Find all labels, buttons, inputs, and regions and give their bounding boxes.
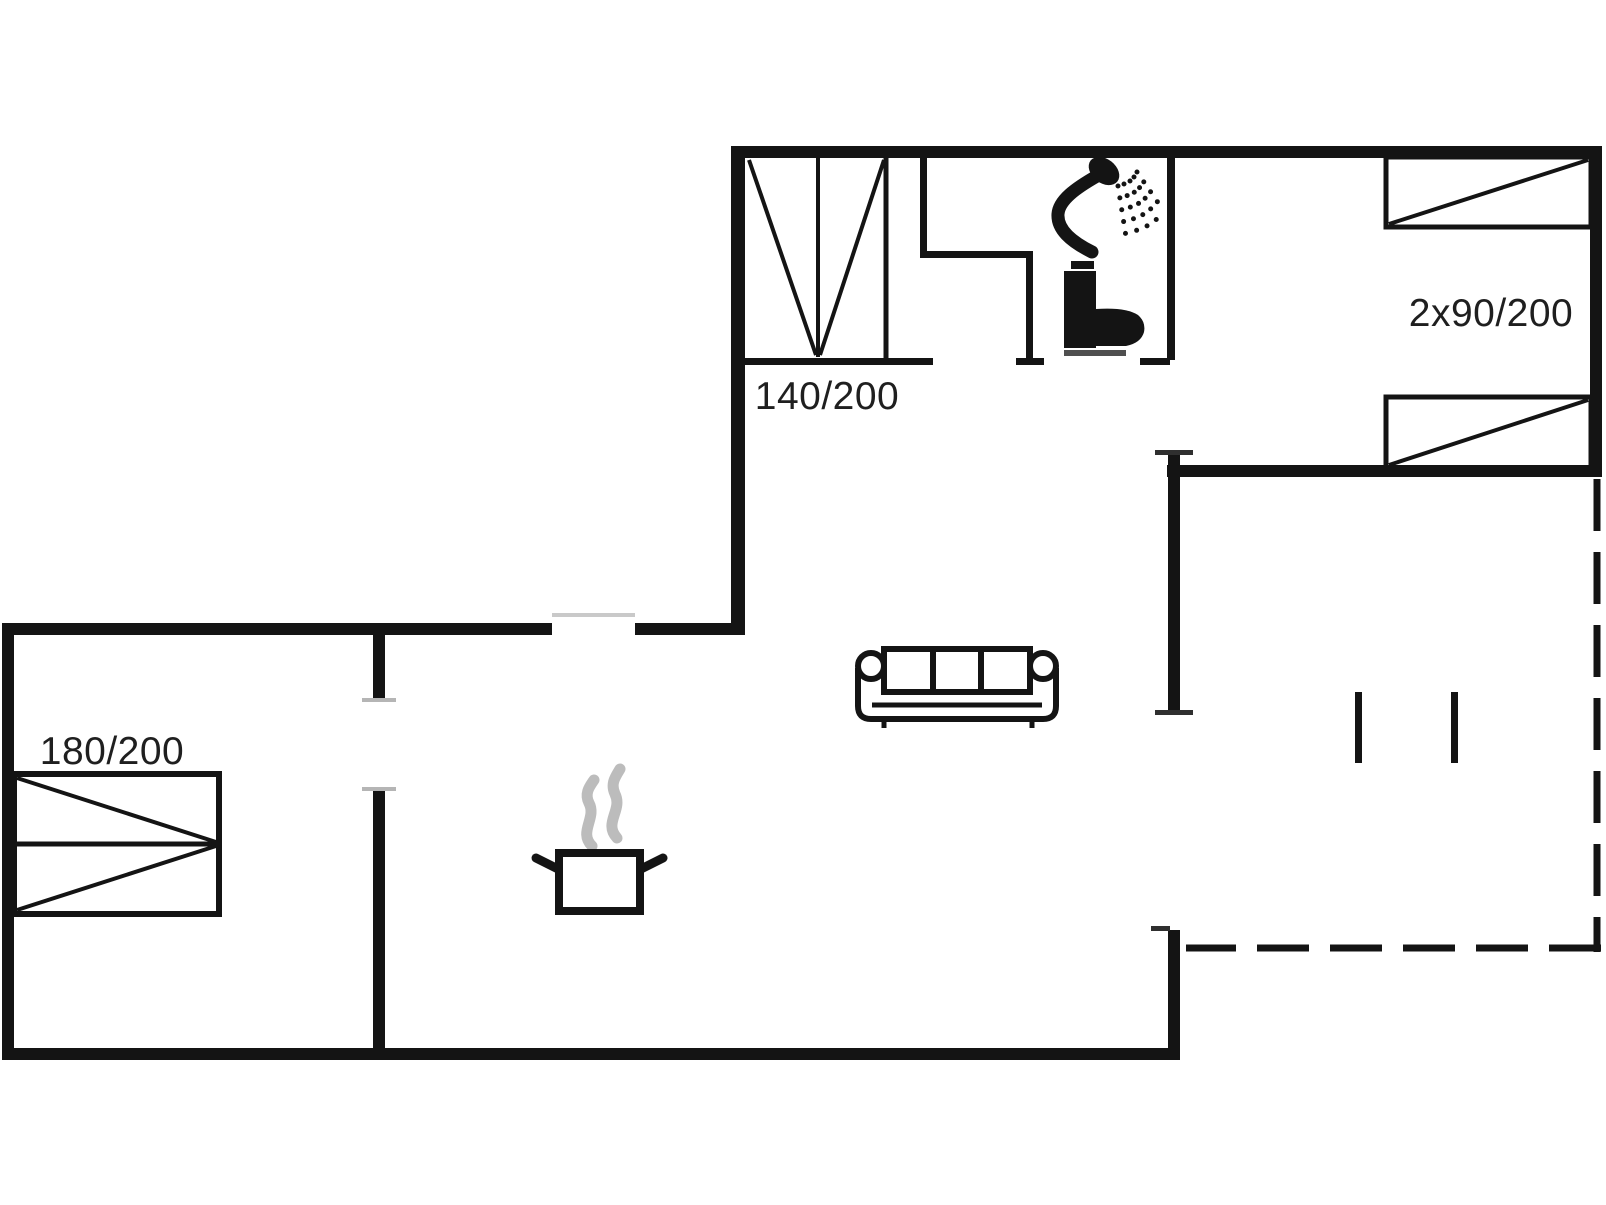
cooking-pot-icon: [536, 769, 663, 911]
wall-bath-step-v1: [920, 152, 927, 258]
steam-wisp-left: [587, 780, 594, 846]
wall-east-lower: [1168, 930, 1180, 1060]
wall-upper-left: [731, 146, 745, 635]
wall-bath-bedroom2: [1167, 152, 1175, 360]
pot-body: [559, 853, 640, 911]
floorplan-canvas: 140/200 180/200 2x90/200: [0, 0, 1606, 1205]
steam-wisp-right: [612, 769, 620, 838]
bed-symbol-twin-top: [1386, 157, 1591, 227]
tick-east-wall-lower-top: [1151, 926, 1170, 931]
tick-left-bedroom-door-bottom: [362, 787, 396, 791]
tick-left-bedroom-door-top: [362, 698, 396, 702]
terrace-door-marker-left: [1355, 692, 1362, 763]
window-line: [552, 613, 635, 617]
wall-living-top-right: [635, 623, 745, 635]
tick-east-wall-bottom: [1155, 710, 1193, 715]
toilet-cistern: [1064, 271, 1096, 348]
wall-bath-step-h: [920, 251, 1033, 258]
pot-handle-left: [536, 858, 558, 869]
wall-living-top-left: [2, 623, 552, 635]
terrace-dashed-boundary: [1186, 479, 1601, 952]
wall-bedroom1-bottom: [743, 358, 933, 365]
toilet-lid: [1071, 261, 1094, 269]
wall-left-bedroom-upper: [373, 635, 385, 700]
shower-spray-dots: [1118, 172, 1161, 243]
toilet-bowl: [1096, 309, 1144, 346]
pot-handle-right: [641, 858, 663, 869]
wall-left-bedroom-lower: [373, 791, 385, 1060]
beds: [14, 157, 1591, 914]
wall-bottom: [2, 1048, 1180, 1060]
steam-wisps: [587, 769, 620, 846]
door-ticks-light: [362, 698, 396, 791]
tick-east-wall-top: [1155, 450, 1193, 455]
bed-symbol-double-180: [14, 774, 219, 914]
bed-symbol-twin-bottom: [1386, 397, 1591, 468]
sofa-icon: [858, 649, 1056, 728]
wall-bath-step-foot: [1016, 358, 1044, 365]
toilet-base: [1064, 350, 1126, 356]
bed-symbol-double-140: [749, 158, 886, 360]
toilet-icon: [1064, 261, 1144, 356]
label-bed-2x90: 2x90/200: [1409, 292, 1573, 335]
wall-bath-door-jamb: [1140, 358, 1170, 365]
sofa-back-cushions: [884, 649, 1030, 692]
shower-icon: [1058, 151, 1161, 252]
wall-bath-step-v2: [1026, 251, 1033, 360]
label-bed-140: 140/200: [755, 375, 899, 418]
label-bed-180: 180/200: [40, 730, 184, 773]
floorplan-page: 140/200 180/200 2x90/200: [0, 0, 1606, 1205]
walls: [2, 146, 1602, 1060]
wall-east-upper: [1168, 455, 1180, 710]
shower-arm: [1058, 176, 1097, 252]
terrace-door-marker-right: [1451, 692, 1458, 763]
